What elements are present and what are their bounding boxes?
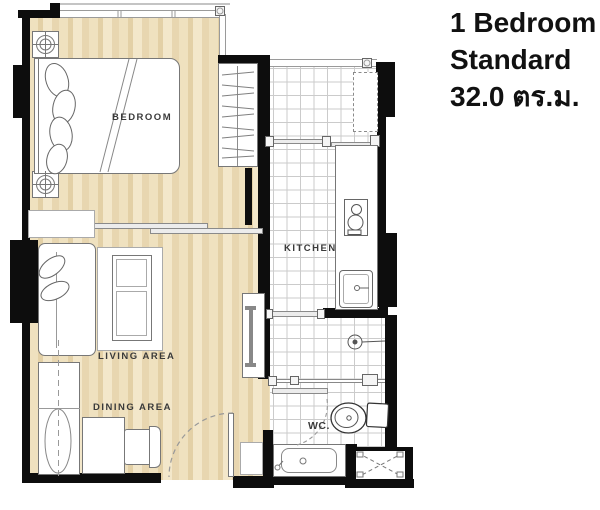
bedroom-label: BEDROOM — [112, 112, 172, 123]
dining-area-label: DINING AREA — [93, 402, 172, 413]
wardrobe-hangers — [222, 66, 254, 166]
ac-unit-icon — [357, 452, 403, 477]
living-area-label: LIVING AREA — [98, 351, 175, 362]
title-line-3: 32.0 ตร.ม. — [450, 78, 596, 115]
toilet-icon — [331, 403, 389, 433]
title-line-2: Standard — [450, 41, 596, 78]
kitchen-label: KITCHEN — [284, 243, 337, 254]
faucet-icon — [355, 286, 370, 291]
window-mullions — [118, 8, 370, 66]
floor-plan-canvas: BEDROOM KITCHEN LIVING AREA DINING AREA … — [0, 0, 600, 510]
wc-label: WC. — [308, 420, 330, 432]
shower-head-icon — [348, 335, 385, 349]
stove-burners-icon — [348, 205, 363, 235]
sofa-pillows — [35, 251, 72, 304]
vanity-drain-icon — [275, 458, 306, 470]
bed-pillows — [41, 60, 78, 176]
ceiling-light-icon — [32, 31, 59, 58]
plan-title: 1 Bedroom Standard 32.0 ตร.ม. — [450, 4, 596, 115]
ceiling-light-icon — [32, 171, 59, 198]
entrance-door-swing-arc — [169, 413, 233, 477]
title-line-1: 1 Bedroom — [450, 4, 596, 41]
